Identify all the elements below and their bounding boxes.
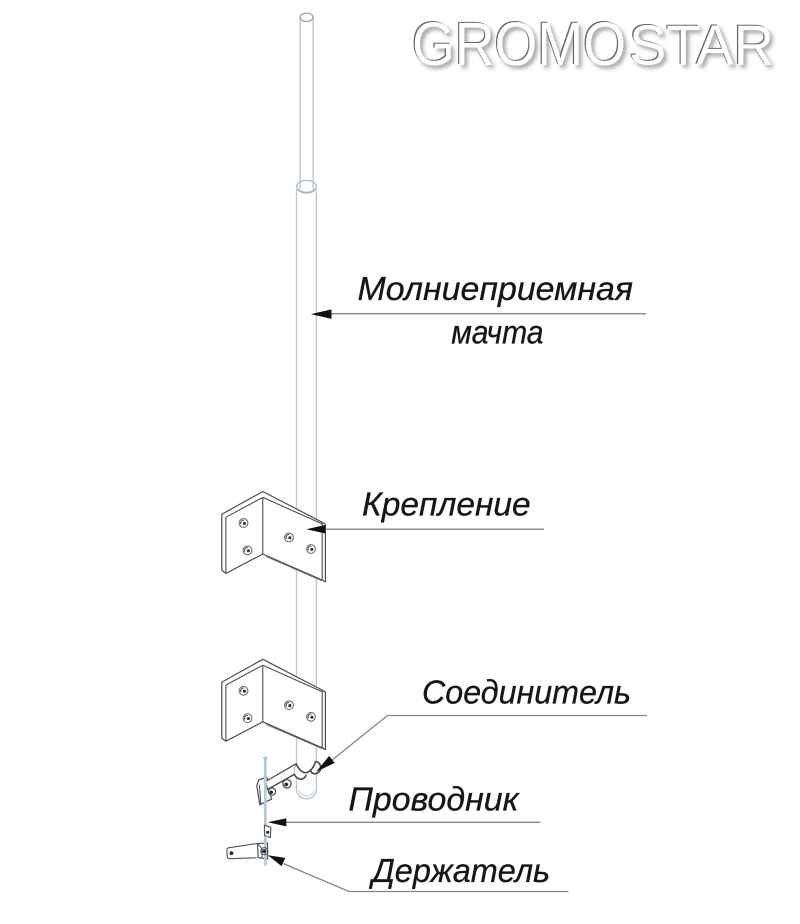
svg-text:GROMO: GROMO xyxy=(412,10,626,79)
svg-text:STAR: STAR xyxy=(629,14,774,78)
svg-text:Проводник: Проводник xyxy=(348,782,519,819)
svg-text:Держатель: Держатель xyxy=(368,853,550,890)
svg-text:Крепление: Крепление xyxy=(362,486,531,523)
svg-text:мачта: мачта xyxy=(451,314,543,351)
svg-text:Молниеприемная: Молниеприемная xyxy=(358,271,634,308)
svg-text:Соединитель: Соединитель xyxy=(422,675,631,712)
